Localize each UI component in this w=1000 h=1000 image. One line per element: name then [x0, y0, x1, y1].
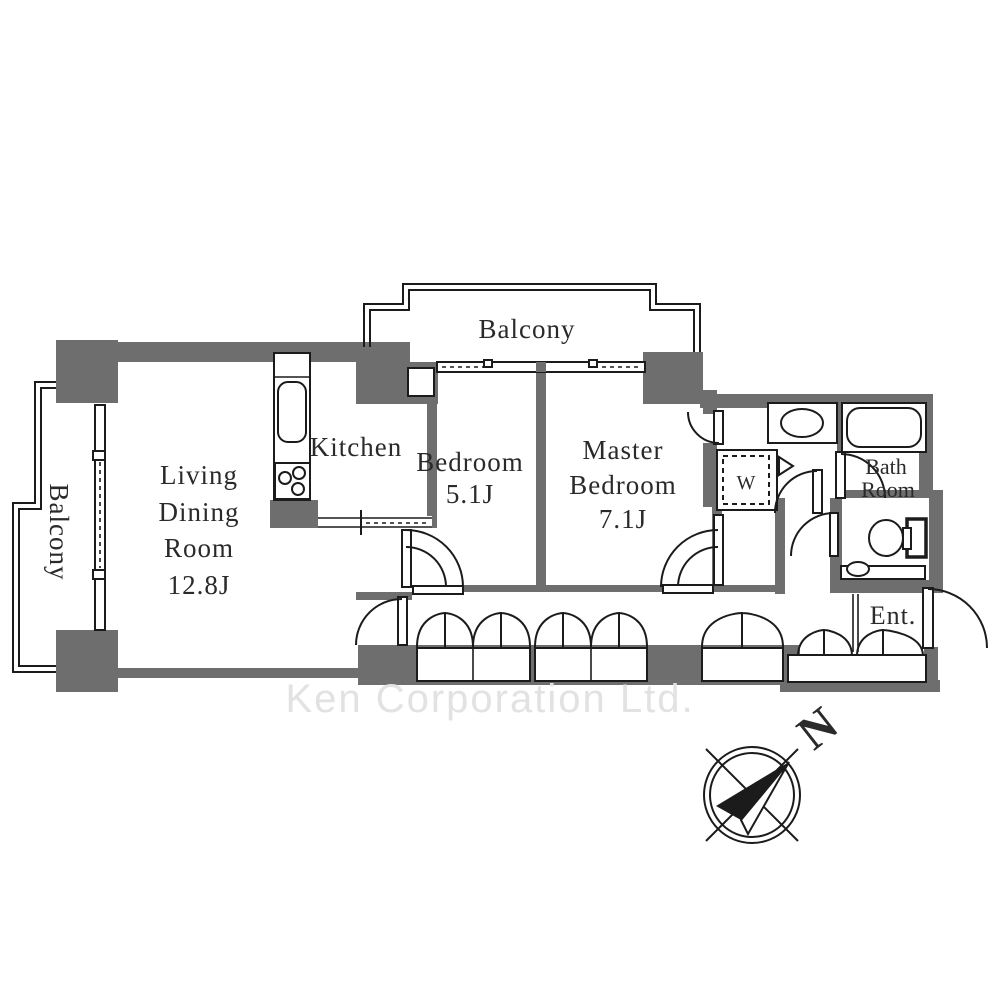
label-master-1: Master [583, 435, 664, 465]
label-bedroom-1: Bedroom [416, 447, 524, 477]
label-master-3: 7.1J [599, 504, 647, 534]
window-living-handle-top [93, 451, 105, 460]
kitchen-sink [278, 382, 306, 442]
label-balcony-top: Balcony [479, 314, 576, 344]
closet-2-bifold-left [535, 613, 591, 647]
bathtub [847, 408, 921, 447]
stove-burner-2 [293, 467, 305, 479]
wall-master-bottom [713, 585, 775, 592]
stove-burner-3 [292, 483, 304, 495]
floorplan-drawing: Ken Corporation Ltd. Balcony Balcony Liv… [0, 0, 1000, 1000]
living-door-arc [356, 599, 402, 645]
toilet-door-arc [791, 513, 834, 556]
watermark: Ken Corporation Ltd. [285, 677, 694, 721]
wall-bedroom-bottom [460, 585, 663, 592]
window-handle-right [589, 360, 597, 367]
closet-1-bifold-left [417, 613, 473, 647]
closet-1-bifold-right [473, 613, 530, 647]
compass: N [704, 697, 848, 843]
toilet-bowl [869, 520, 903, 556]
pillar-bottom-left [56, 630, 118, 692]
floorplan-page: Ken Corporation Ltd. Balcony Balcony Liv… [0, 0, 1000, 1000]
washbasin-bowl [781, 409, 823, 437]
stove-burner-1 [279, 472, 291, 484]
master-door-leaf-1 [714, 515, 723, 585]
label-living-1: Living [160, 460, 238, 490]
label-living-4: 12.8J [168, 570, 231, 600]
toilet-tank-notch [903, 528, 911, 549]
shoe-cabinet [788, 655, 926, 682]
wall-right-toilet [929, 490, 943, 592]
master-wash-door-leaf [714, 411, 723, 444]
pillar-top-right [643, 352, 703, 404]
entrance-door-leaf [923, 588, 933, 648]
closet-2-bifold-right [591, 613, 647, 647]
toilet-hand-basin [847, 562, 869, 576]
bedroom-door-leaf-2 [413, 586, 463, 594]
label-bath-2: Room [861, 477, 915, 502]
window-handle-left [484, 360, 492, 367]
pillar-top-left [56, 340, 118, 403]
wall-bedroom-divider [536, 362, 546, 592]
label-living-3: Room [164, 533, 234, 563]
label-laundry: W [737, 472, 756, 494]
entrance-door-arc [928, 589, 987, 648]
shoe-cabinet-bifold-right [857, 630, 923, 656]
wall-top-ldk [118, 342, 356, 362]
window-divider [536, 362, 546, 372]
wall-wash-ent [775, 498, 785, 594]
window-living [95, 405, 105, 630]
label-kitchen: Kitchen [310, 432, 402, 462]
bedroom-door-leaf-1 [402, 530, 411, 587]
closet-3-bifold [702, 613, 783, 647]
closet-3 [702, 648, 783, 681]
bath-door-leaf [836, 452, 845, 498]
window-living-handle-bottom [93, 570, 105, 579]
pipe-shaft [408, 368, 434, 396]
wall-master-wash-mid [703, 443, 717, 507]
toilet-door-leaf [830, 513, 838, 556]
living-door-leaf [398, 597, 407, 645]
master-door-leaf-2 [663, 585, 713, 593]
label-living-2: Dining [158, 497, 239, 527]
wall-kitchen-stub [270, 500, 318, 528]
washroom-door-leaf [813, 470, 822, 513]
label-balcony-left: Balcony [44, 484, 74, 581]
label-bedroom-2: 5.1J [446, 479, 494, 509]
shoe-cabinet-bifold-left [798, 630, 852, 656]
label-master-2: Bedroom [569, 470, 677, 500]
pillar-top-center [356, 342, 410, 404]
label-entrance: Ent. [870, 601, 917, 630]
label-bath-1: Bath [865, 454, 907, 479]
laundry-door-arrow [779, 457, 793, 475]
